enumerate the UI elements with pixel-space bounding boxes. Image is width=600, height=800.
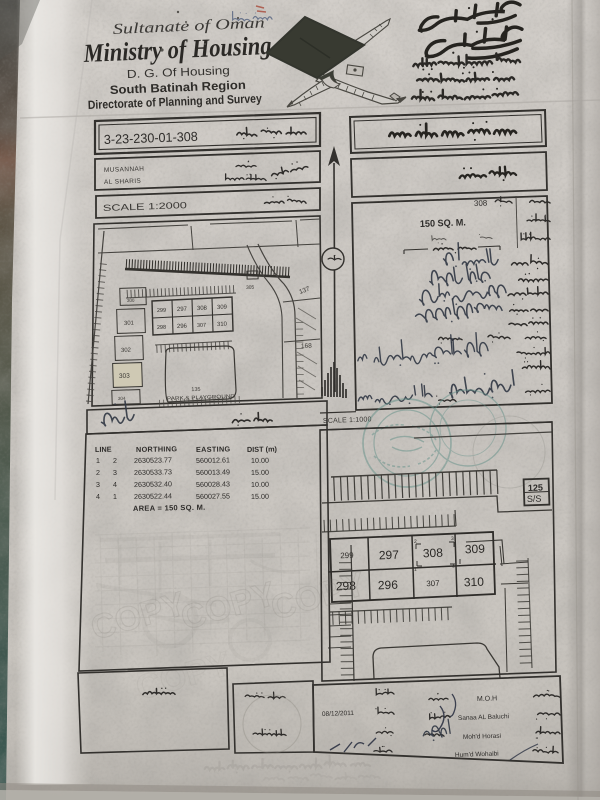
svg-text:3: 3	[113, 468, 117, 477]
svg-text:304: 304	[118, 396, 126, 401]
svg-text:307: 307	[197, 323, 206, 329]
svg-text:3: 3	[96, 480, 100, 489]
svg-text:DIST (m): DIST (m)	[247, 444, 278, 454]
svg-text:AREA = 150 SQ. M.: AREA = 150 SQ. M.	[133, 503, 206, 513]
svg-text:2: 2	[414, 539, 417, 545]
svg-text:AL SHARIS: AL SHARIS	[104, 178, 142, 186]
svg-text:1: 1	[96, 456, 100, 465]
svg-text:309: 309	[465, 542, 486, 557]
svg-text:296: 296	[177, 324, 188, 330]
svg-text:310: 310	[464, 575, 485, 590]
svg-text:299: 299	[157, 308, 166, 314]
svg-text:303: 303	[119, 373, 130, 380]
svg-text:NORTHING: NORTHING	[136, 444, 177, 454]
svg-text:4: 4	[113, 480, 117, 489]
svg-text:1: 1	[113, 492, 117, 501]
svg-text:560028.43: 560028.43	[196, 479, 230, 489]
svg-text:10.00: 10.00	[251, 480, 269, 489]
svg-text:301: 301	[124, 321, 135, 327]
svg-text:15.00: 15.00	[251, 468, 269, 477]
svg-text:4: 4	[452, 564, 455, 570]
svg-text:560013.49: 560013.49	[196, 467, 230, 477]
svg-text:150 SQ. M.: 150 SQ. M.	[420, 217, 466, 230]
svg-text:MUSANNAH: MUSANNAH	[104, 166, 145, 174]
svg-text:308: 308	[474, 199, 488, 208]
svg-text:308: 308	[423, 546, 444, 561]
svg-text:Moh'd Horasi: Moh'd Horasi	[463, 733, 501, 741]
svg-text:2630532.40: 2630532.40	[134, 479, 172, 489]
svg-text:4: 4	[96, 492, 100, 501]
svg-text:15.00: 15.00	[251, 492, 269, 501]
svg-text:307: 307	[426, 579, 440, 588]
svg-text:305: 305	[246, 285, 255, 291]
svg-text:LINE: LINE	[95, 445, 112, 454]
svg-text:2630523.77: 2630523.77	[134, 455, 172, 465]
svg-text:297: 297	[177, 307, 188, 313]
svg-text:560027.55: 560027.55	[196, 491, 230, 501]
svg-text:EASTING: EASTING	[196, 444, 231, 454]
svg-text:300: 300	[127, 298, 135, 303]
svg-text:08/12/2011: 08/12/2011	[322, 710, 355, 718]
svg-text:S/S: S/S	[527, 493, 542, 504]
svg-text:2630522.44: 2630522.44	[134, 491, 172, 501]
svg-text:2: 2	[96, 468, 100, 477]
svg-text:1: 1	[414, 567, 417, 573]
svg-text:2630533.73: 2630533.73	[134, 467, 172, 477]
svg-text:302: 302	[121, 348, 132, 354]
svg-text:299: 299	[340, 551, 354, 560]
svg-text:298: 298	[157, 325, 166, 331]
svg-text:125: 125	[528, 482, 543, 493]
svg-text:310: 310	[217, 322, 228, 328]
svg-text:2: 2	[113, 456, 117, 465]
svg-text:10.00: 10.00	[251, 456, 269, 465]
svg-text:168: 168	[301, 343, 312, 350]
svg-text:135: 135	[191, 387, 200, 393]
svg-text:296: 296	[378, 578, 399, 593]
svg-text:3: 3	[451, 536, 454, 542]
svg-text:M.O.H: M.O.H	[477, 695, 497, 703]
svg-text:560012.61: 560012.61	[196, 455, 230, 465]
svg-text:309: 309	[217, 305, 228, 311]
svg-text:308: 308	[197, 306, 208, 312]
svg-text:297: 297	[379, 548, 400, 563]
